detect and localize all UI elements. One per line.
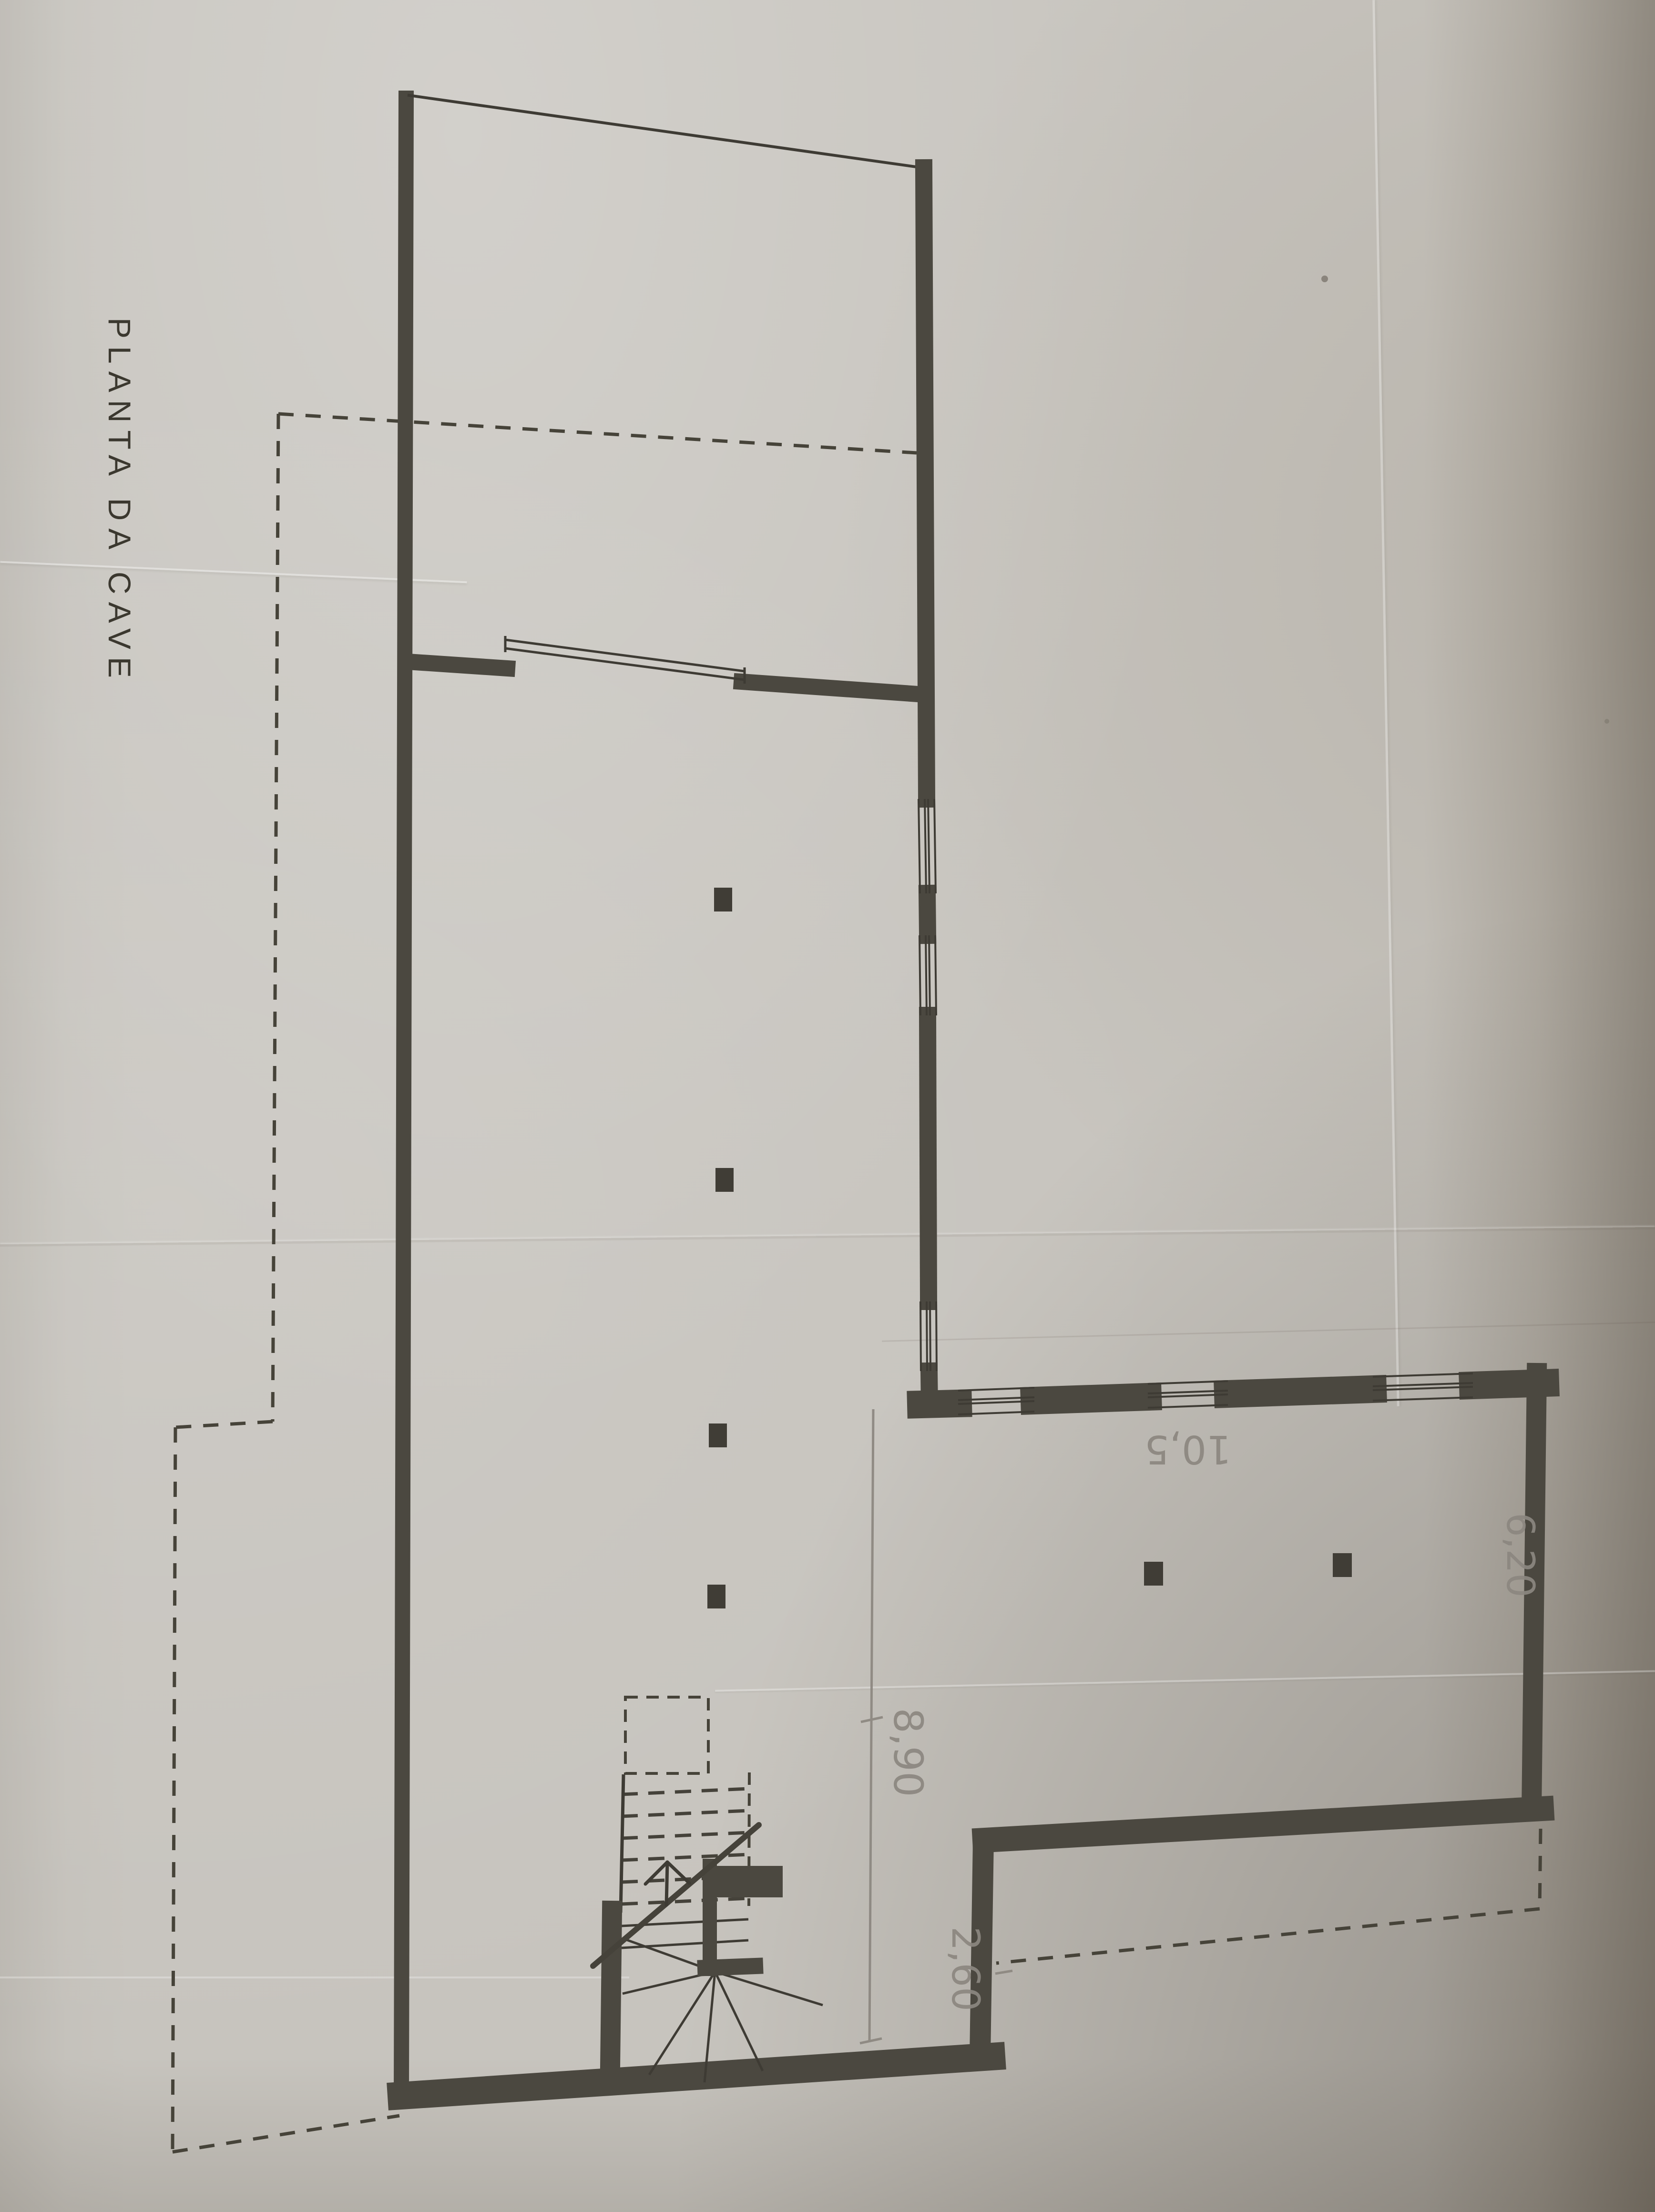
stairwell-dashed-rect bbox=[625, 1697, 708, 1773]
plan-title: PLANTA DA CAVE bbox=[102, 317, 137, 686]
window-opening bbox=[1373, 1373, 1473, 1401]
arrow-stem bbox=[666, 1862, 667, 1905]
columns bbox=[707, 888, 1352, 1608]
window-line bbox=[1373, 1397, 1473, 1401]
column bbox=[1144, 1562, 1163, 1586]
column bbox=[709, 1423, 727, 1447]
column bbox=[714, 888, 732, 911]
leaf-line bbox=[505, 648, 745, 680]
dashed-line-left-jog bbox=[175, 1422, 273, 1427]
wall-bottom-main bbox=[401, 2057, 991, 2096]
dashed-line-wing-corner-vertical bbox=[1540, 1829, 1541, 1909]
stair-left-line-thin bbox=[621, 1774, 623, 1913]
wall-partition-right bbox=[742, 682, 918, 694]
dimension-label-6-20: 6,20 bbox=[1498, 1513, 1543, 1598]
window-line bbox=[936, 1301, 937, 1371]
window-line bbox=[1373, 1387, 1473, 1390]
wall-left bbox=[401, 98, 406, 2096]
dimension-label-10-5: 10,5 bbox=[1144, 1426, 1232, 1472]
staircase bbox=[593, 1697, 823, 2082]
window-line bbox=[930, 1301, 930, 1371]
column bbox=[1333, 1553, 1352, 1577]
dimension-tick bbox=[995, 1971, 1012, 1974]
window-line bbox=[926, 935, 927, 1015]
wall-wing-bottom bbox=[985, 1809, 1542, 1840]
dimension-tick bbox=[860, 2038, 882, 2043]
dimension-line bbox=[869, 1409, 873, 2042]
tread-dashed bbox=[622, 1811, 748, 1816]
stair-wall-nub bbox=[716, 1866, 783, 1897]
tread-dashed bbox=[622, 1854, 748, 1860]
window-line bbox=[920, 1301, 921, 1371]
window-line bbox=[919, 935, 920, 1015]
window-line bbox=[934, 799, 936, 893]
tread-dashed bbox=[622, 1898, 748, 1904]
dimension-label-2-60: 2,60 bbox=[943, 1926, 988, 2011]
wall-right-upper-b bbox=[928, 1015, 929, 1301]
boundary-dashed-lines bbox=[173, 414, 1541, 2152]
window-line bbox=[927, 1301, 927, 1371]
tread-dashed bbox=[622, 1789, 748, 1794]
window-line bbox=[929, 935, 930, 1015]
winder-tread bbox=[715, 1972, 763, 2071]
walls bbox=[401, 95, 1545, 2096]
partition-opening-leaf bbox=[505, 636, 745, 684]
window-line bbox=[935, 935, 936, 1015]
dimension-label-8-90: 8,90 bbox=[885, 1708, 931, 1797]
winder-tread bbox=[649, 1972, 715, 2075]
wall-wing-top-s3 bbox=[1228, 1389, 1373, 1394]
floorplan-drawing: 10,5 6,20 8,90 2,60 PLANTA DA CAVE bbox=[0, 0, 1655, 2212]
window-line bbox=[1373, 1373, 1473, 1377]
dashed-line-left-vertical bbox=[273, 414, 278, 1422]
stair-direction-arrow bbox=[645, 1862, 689, 1905]
dashed-line-bottom-left bbox=[173, 2116, 399, 2152]
wall-right-upper-a bbox=[924, 168, 927, 799]
leaf-line bbox=[505, 640, 745, 671]
scanned-page: 10,5 6,20 8,90 2,60 PLANTA DA CAVE bbox=[0, 0, 1655, 2212]
dashed-line-wing-bottom bbox=[996, 1909, 1540, 1963]
window-opening bbox=[919, 799, 936, 893]
wall-right-upper-pier bbox=[927, 893, 928, 935]
winder-tread bbox=[715, 1972, 823, 2005]
column bbox=[715, 1168, 734, 1192]
window-opening bbox=[920, 1301, 937, 1371]
stair-wall-foot bbox=[705, 1966, 755, 1968]
window-line bbox=[928, 799, 930, 893]
wall-partition-left bbox=[408, 662, 507, 668]
wall-wing-top-s2 bbox=[1034, 1397, 1148, 1401]
dashed-line-outer-left-vertical bbox=[173, 1427, 175, 2152]
dashed-line-room-cross bbox=[278, 414, 917, 453]
window-opening bbox=[919, 935, 936, 1015]
window-line bbox=[925, 799, 926, 893]
column bbox=[707, 1585, 725, 1608]
wall-wing-top-s1 bbox=[921, 1403, 958, 1404]
window-line bbox=[919, 799, 920, 893]
window-line bbox=[1373, 1383, 1473, 1386]
stair-wall-left-thick bbox=[610, 1911, 612, 2067]
tread-dashed bbox=[622, 1833, 748, 1838]
wall-top-thin bbox=[409, 95, 923, 168]
